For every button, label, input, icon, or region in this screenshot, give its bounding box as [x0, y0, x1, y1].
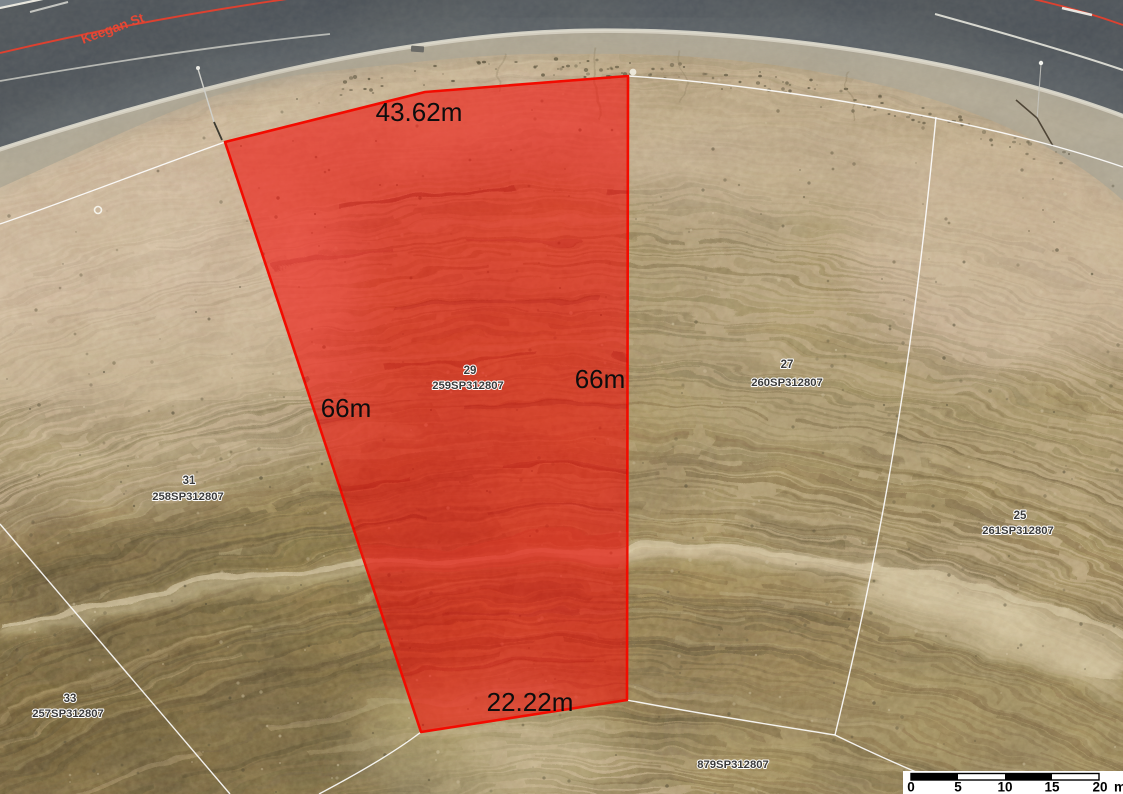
svg-text:66m: 66m: [321, 393, 372, 423]
svg-text:257SP312807: 257SP312807: [32, 708, 104, 720]
svg-text:261SP312807: 261SP312807: [982, 525, 1054, 537]
svg-text:5: 5: [954, 780, 962, 794]
svg-text:43.62m: 43.62m: [376, 97, 463, 127]
svg-text:33: 33: [64, 693, 77, 705]
svg-text:879SP312807: 879SP312807: [697, 759, 769, 771]
svg-text:258SP312807: 258SP312807: [152, 491, 224, 503]
svg-text:0: 0: [907, 780, 915, 794]
svg-text:22.22m: 22.22m: [487, 687, 574, 717]
svg-text:20: 20: [1092, 780, 1107, 794]
svg-text:29: 29: [464, 365, 477, 377]
svg-text:66m: 66m: [575, 364, 626, 394]
svg-text:259SP312807: 259SP312807: [432, 380, 504, 392]
svg-text:27: 27: [781, 359, 794, 371]
svg-text:25: 25: [1014, 510, 1027, 522]
svg-text:m: m: [1114, 780, 1123, 794]
svg-text:10: 10: [997, 780, 1012, 794]
svg-text:31: 31: [183, 475, 196, 487]
svg-text:15: 15: [1044, 780, 1060, 794]
svg-text:260SP312807: 260SP312807: [751, 377, 823, 389]
